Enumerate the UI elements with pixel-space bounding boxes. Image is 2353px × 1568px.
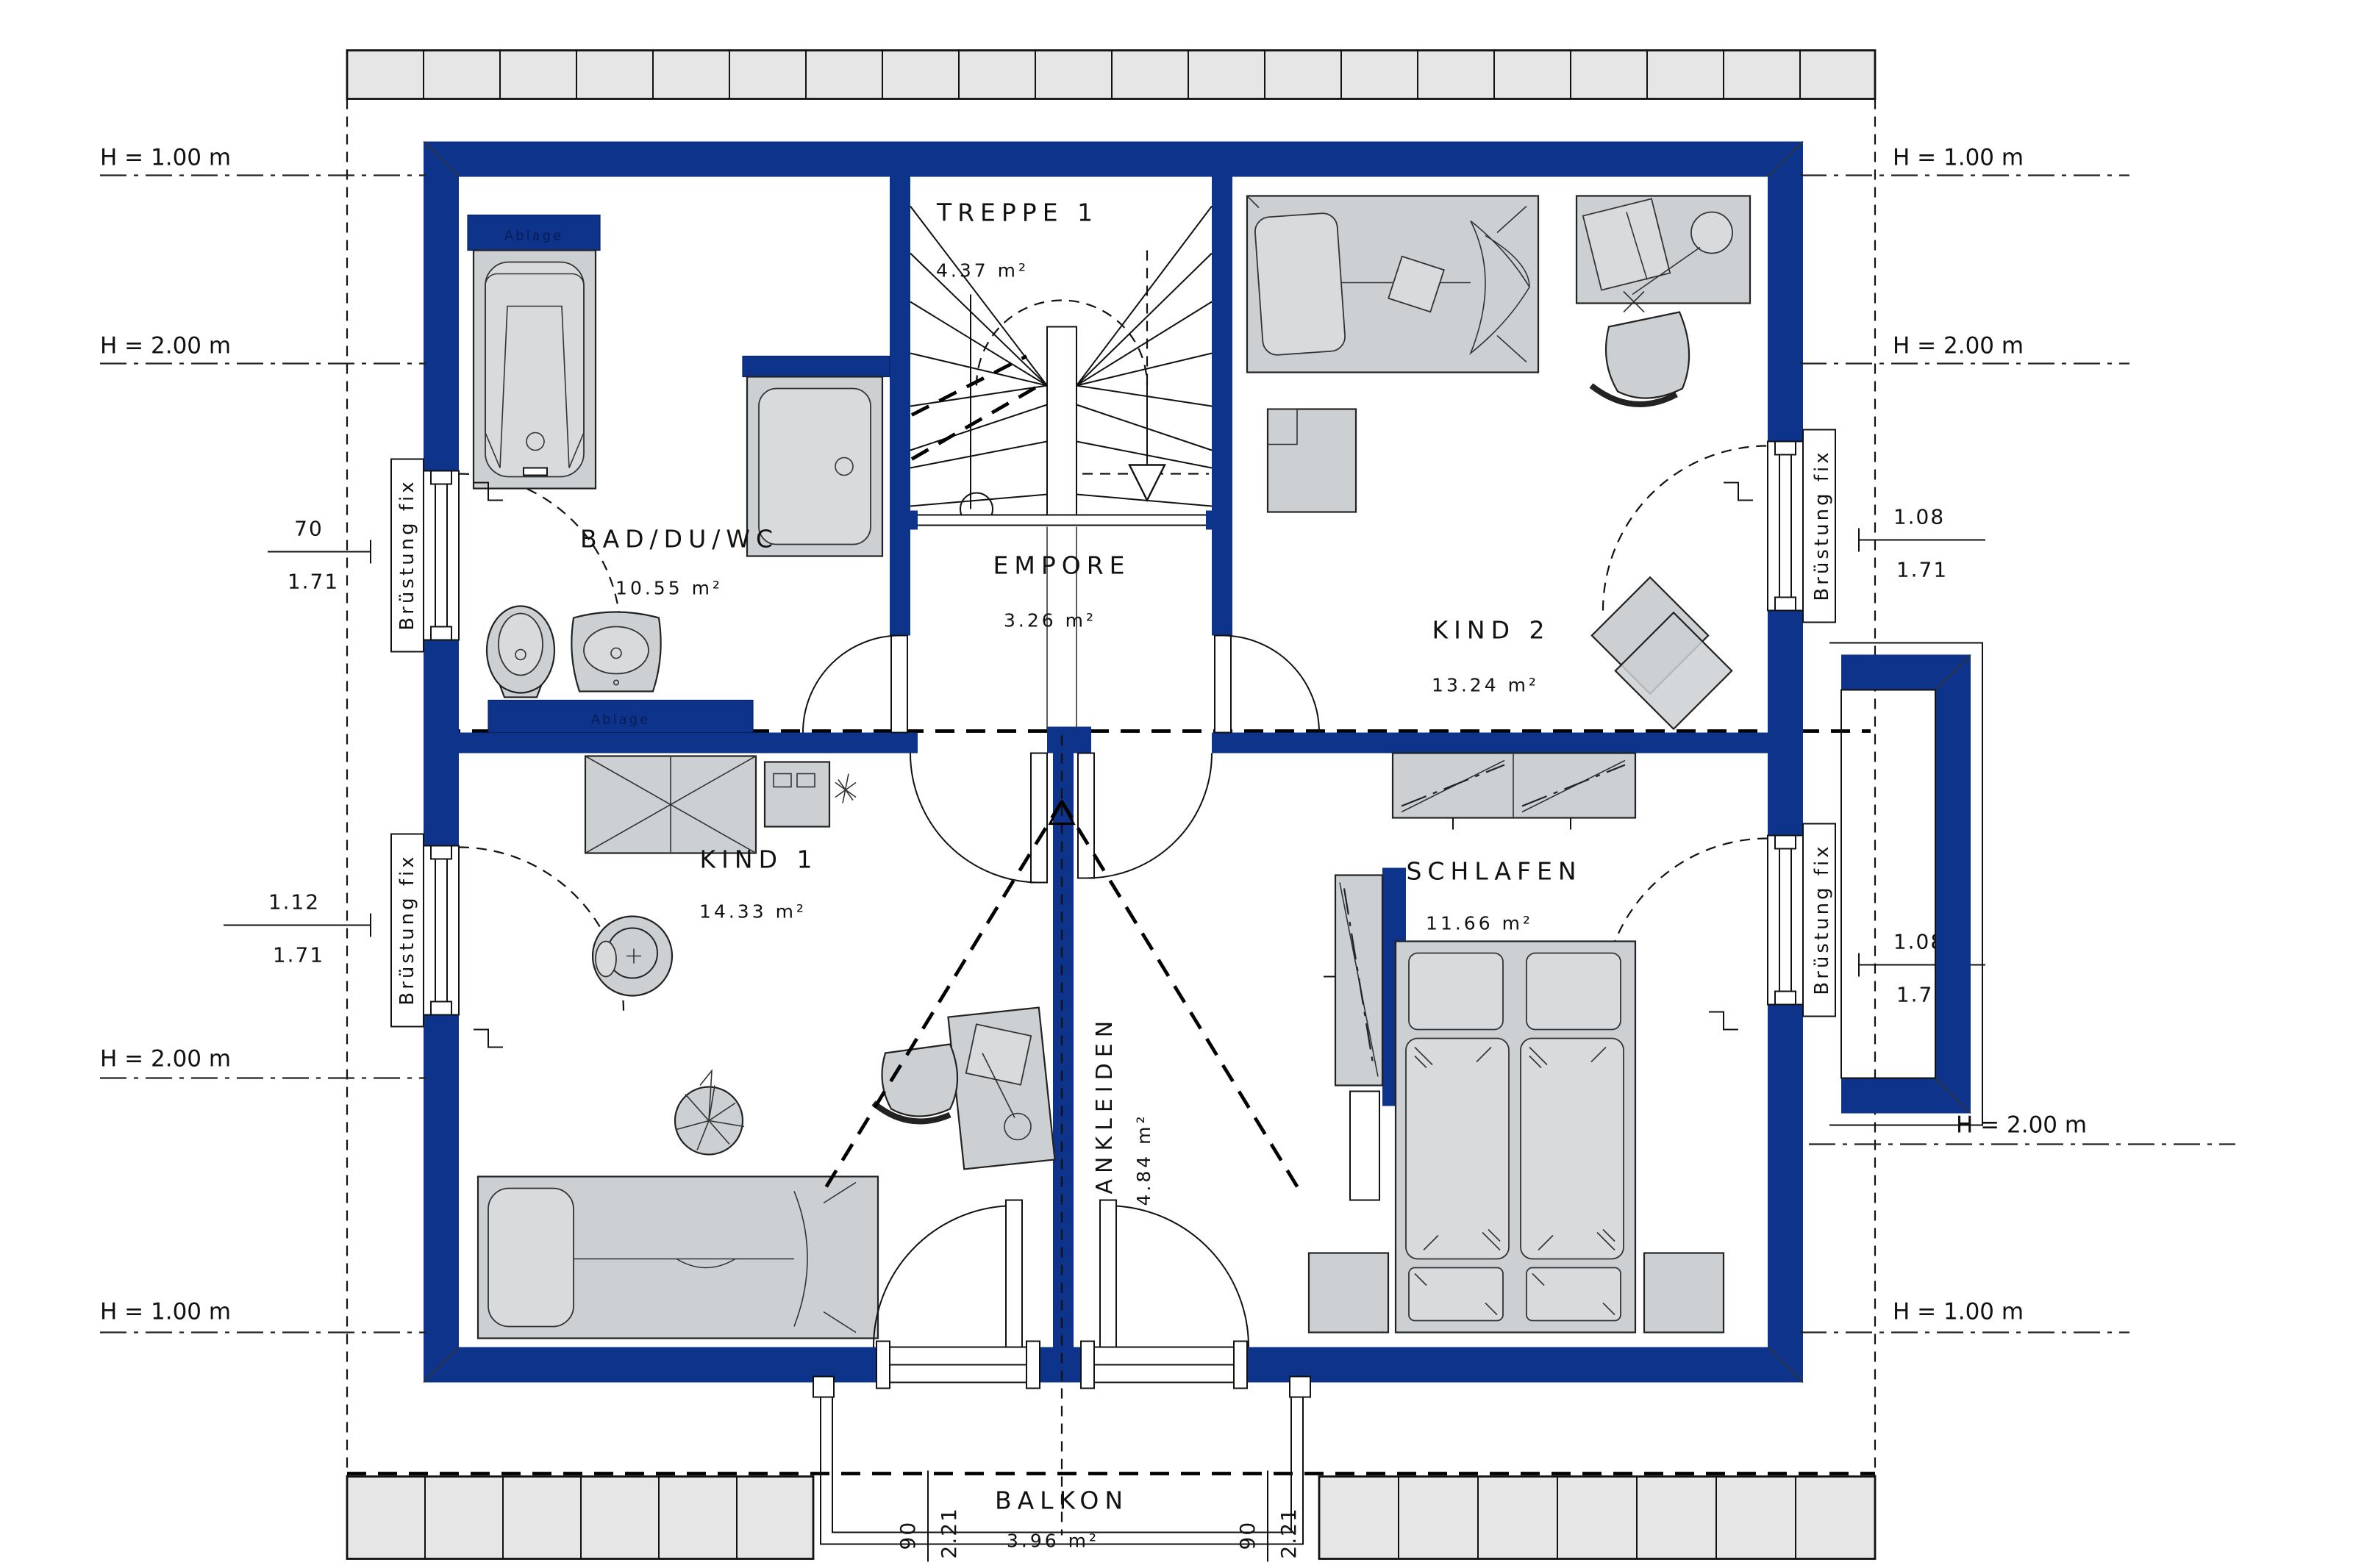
room-label-kind2: KIND 2 — [1432, 616, 1551, 645]
wardrobe-schlafen — [1393, 753, 1635, 830]
plant-kind1 — [675, 1071, 744, 1155]
room-label-bad: BAD/DU/WC — [580, 525, 779, 554]
wardrobe-kind1 — [585, 756, 756, 853]
svg-text:Ablage: Ablage — [504, 229, 563, 244]
height-line-lower-left-2m: H = 2.00 m — [100, 1046, 426, 1078]
balcony-door-right — [1100, 1200, 1249, 1347]
svg-text:H = 2.00 m: H = 2.00 m — [1893, 333, 2024, 359]
stair-spine-wall — [1047, 327, 1076, 518]
svg-text:1.71: 1.71 — [273, 943, 324, 967]
shelf-kind2 — [1268, 409, 1356, 512]
floorplan-svg: H = 1.00 m H = 2.00 m H = 2.00 m H = 1.0… — [0, 0, 2353, 1568]
room-label-empore: EMPORE — [993, 551, 1131, 580]
svg-text:H = 1.00 m: H = 1.00 m — [1893, 145, 2024, 171]
svg-text:Ablage: Ablage — [591, 712, 650, 728]
room-label-treppe: TREPPE 1 — [936, 198, 1099, 227]
stair-direction-arrow — [1129, 465, 1165, 501]
svg-text:Brüstung fix: Brüstung fix — [1811, 449, 1833, 601]
roof-eave-strip-top — [347, 51, 1875, 99]
door-kind1 — [910, 753, 1047, 883]
roof-eave-strip-bottom-right — [1319, 1477, 1875, 1559]
svg-text:Brüstung fix: Brüstung fix — [396, 853, 418, 1005]
height-line-bottom-right-1m: H = 1.00 m — [1800, 1299, 2129, 1333]
bed-kind2 — [1247, 196, 1538, 373]
svg-text:Brüstung fix: Brüstung fix — [1811, 843, 1833, 995]
nightstand-right — [1644, 1253, 1724, 1333]
room-label-kind1: KIND 1 — [700, 845, 818, 874]
svg-text:H = 1.00 m: H = 1.00 m — [1893, 1299, 2024, 1325]
svg-text:2.21: 2.21 — [1277, 1507, 1301, 1558]
svg-text:14.33 m²: 14.33 m² — [699, 901, 807, 923]
door-kind2 — [1215, 636, 1319, 733]
staircase — [900, 207, 1224, 730]
armchair-kind1 — [593, 917, 672, 996]
height-line-bottom-left-1m: H = 1.00 m — [100, 1299, 426, 1333]
height-line-right-2m: H = 2.00 m — [1800, 333, 2129, 364]
door-bad — [803, 636, 907, 733]
cabinet-base — [1350, 1092, 1379, 1200]
balcony-door-left — [874, 1200, 1022, 1347]
room-kind1: KIND 1 14.33 m² — [474, 756, 1055, 1339]
bed-kind1 — [478, 1177, 878, 1339]
room-ankleiden: ANKLEIDEN 4.84 m² — [1092, 876, 1382, 1206]
room-label-ankleiden: ANKLEIDEN — [1092, 1015, 1118, 1195]
balcony-door-dim-left: 90 2.21 — [896, 1471, 961, 1562]
window-dim-kind2: 1.08 1.71 — [1859, 505, 1985, 582]
side-table-kind2 — [1592, 577, 1732, 728]
dresser-kind1 — [765, 762, 856, 827]
svg-text:Brüstung fix: Brüstung fix — [396, 479, 418, 630]
window-dim-bad: 70 1.71 — [268, 517, 371, 594]
svg-text:3.96 m²: 3.96 m² — [1007, 1531, 1099, 1552]
svg-text:H = 1.00 m: H = 1.00 m — [100, 145, 231, 171]
svg-text:4.84 m²: 4.84 m² — [1133, 1114, 1154, 1206]
room-label-schlafen: SCHLAFEN — [1406, 857, 1582, 886]
height-line-left-2m: H = 2.00 m — [100, 333, 426, 364]
desk-kind2 — [1577, 196, 1750, 312]
washbasin — [571, 612, 660, 692]
chair-kind1 — [874, 1045, 957, 1122]
mirror-wardrobe — [1324, 876, 1382, 1086]
svg-text:H = 1.00 m: H = 1.00 m — [100, 1299, 231, 1325]
svg-text:10.55 m²: 10.55 m² — [615, 578, 723, 599]
desk-kind1 — [948, 1008, 1054, 1170]
svg-text:H = 2.00 m: H = 2.00 m — [100, 1046, 231, 1073]
svg-text:1.71: 1.71 — [1896, 558, 1948, 582]
toilet — [487, 606, 554, 698]
window-dim-kind1: 1.12 1.71 — [224, 890, 371, 967]
roof-eave-strip-bottom-left — [347, 1477, 813, 1559]
room-label-balkon: BALKON — [995, 1486, 1129, 1515]
height-line-dormer-right-2m: H = 2.00 m — [1809, 1112, 2235, 1145]
kneewall-step-schlafen — [1709, 1012, 1738, 1030]
kneewall-step-kind2 — [1724, 483, 1753, 501]
svg-text:3.26 m²: 3.26 m² — [1004, 610, 1096, 631]
svg-text:2.21: 2.21 — [937, 1507, 961, 1558]
svg-text:90: 90 — [896, 1521, 920, 1550]
svg-text:1.12: 1.12 — [268, 890, 320, 914]
kneewall-step-kind1 — [474, 1030, 503, 1048]
stair-edge-sill — [910, 515, 1212, 526]
floorplan-page: { "plan": { "rooms": { "treppe": {"name"… — [0, 0, 2353, 1568]
svg-text:70: 70 — [294, 517, 324, 541]
nightstand-left — [1309, 1253, 1388, 1333]
room-bad: Ablage Ablage BAD/DU/WC 10 — [468, 215, 890, 733]
window-kind1: Brüstung fix — [391, 834, 624, 1027]
svg-text:11.66 m²: 11.66 m² — [1426, 913, 1533, 934]
shower-niche — [743, 357, 890, 377]
bathtub — [474, 251, 596, 489]
svg-text:4.37 m²: 4.37 m² — [936, 260, 1029, 282]
dormer-right — [1829, 643, 1982, 1125]
height-line-top-left-1m: H = 1.00 m — [100, 145, 426, 176]
svg-text:H = 2.00 m: H = 2.00 m — [100, 333, 231, 359]
svg-text:13.24 m²: 13.24 m² — [1432, 675, 1539, 696]
window-schlafen: Brüstung fix — [1603, 824, 1835, 1017]
svg-text:1.08: 1.08 — [1893, 505, 1945, 529]
chair-kind2 — [1591, 312, 1689, 404]
height-line-top-right-1m: H = 1.00 m — [1800, 145, 2129, 176]
double-bed — [1396, 942, 1635, 1333]
svg-text:90: 90 — [1235, 1521, 1260, 1550]
svg-text:1.71: 1.71 — [288, 570, 339, 594]
room-kind2: KIND 2 13.24 m² — [1247, 196, 1753, 729]
